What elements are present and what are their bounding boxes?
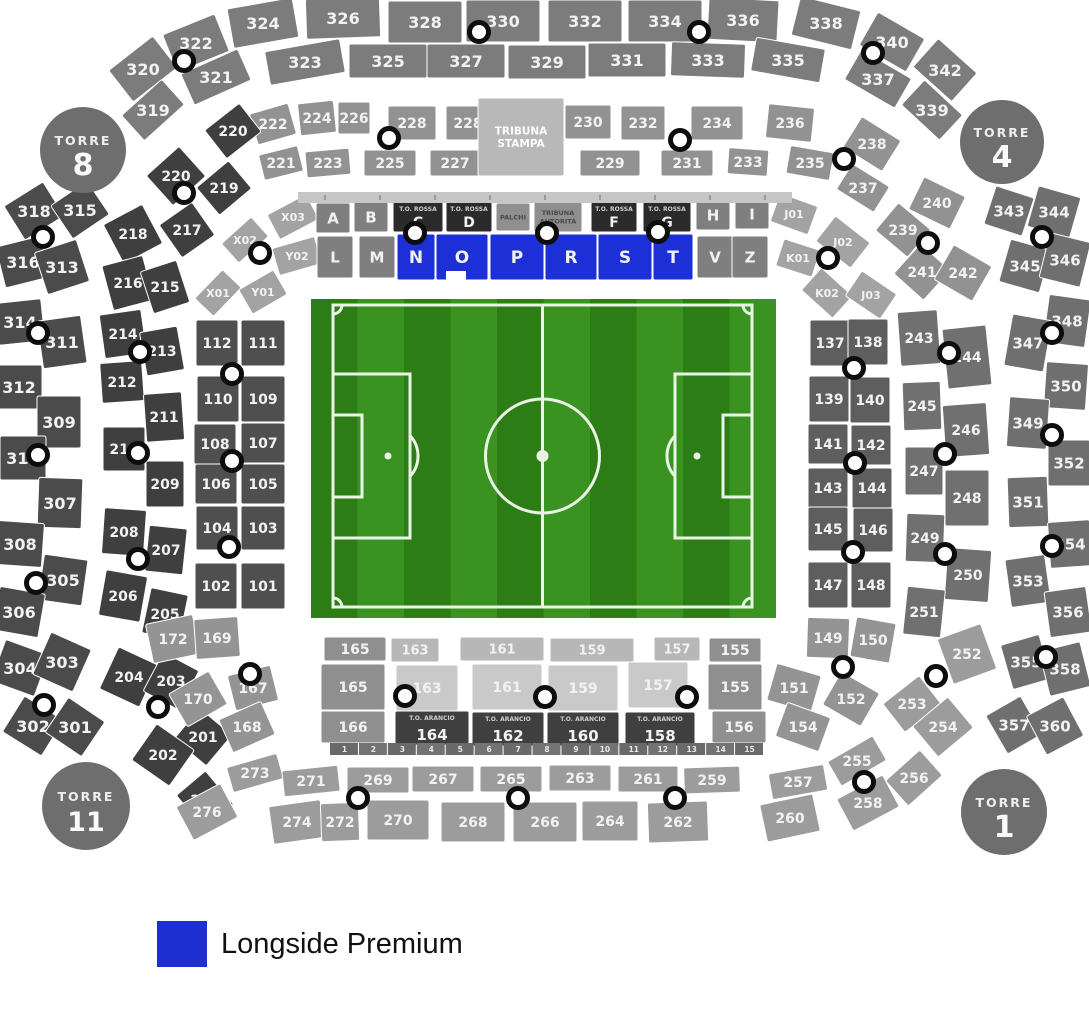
svg-text:218: 218 <box>118 227 147 243</box>
svg-text:333: 333 <box>691 51 724 70</box>
section-157[interactable]: 157 <box>654 637 700 661</box>
section-338[interactable]: 338 <box>791 0 861 50</box>
section-X01[interactable]: X01 <box>195 270 241 317</box>
svg-text:349: 349 <box>1012 414 1043 432</box>
entrance-marker <box>131 343 150 362</box>
svg-text:239: 239 <box>888 223 917 239</box>
section-351[interactable]: 351 <box>1007 476 1049 527</box>
section-220[interactable]: 220 <box>205 103 262 158</box>
svg-text:326: 326 <box>326 9 359 28</box>
section-223[interactable]: 223 <box>305 148 351 178</box>
section-335[interactable]: 335 <box>751 37 826 83</box>
svg-text:257: 257 <box>783 775 812 791</box>
svg-text:307: 307 <box>43 494 76 513</box>
section-231[interactable]: 231 <box>661 150 713 176</box>
section-235[interactable]: 235 <box>786 145 834 180</box>
svg-text:Z: Z <box>745 248 756 266</box>
svg-text:106: 106 <box>201 477 230 493</box>
section-360[interactable]: 360 <box>1026 697 1084 756</box>
tower-11: TORRE11 <box>42 762 130 850</box>
svg-text:L: L <box>330 248 340 266</box>
section-236[interactable]: 236 <box>765 104 814 143</box>
svg-text:V: V <box>709 248 721 266</box>
svg-text:8: 8 <box>73 148 94 183</box>
section-312[interactable]: 312 <box>0 365 42 409</box>
svg-text:168: 168 <box>232 720 261 736</box>
section-227[interactable]: 227 <box>430 150 480 176</box>
section-343[interactable]: 343 <box>984 186 1034 236</box>
row-indicator-strip-bottom: 123456789101112131415 <box>330 743 763 755</box>
svg-text:14: 14 <box>715 745 725 754</box>
svg-text:315: 315 <box>63 201 96 220</box>
section-158[interactable]: T.O. ARANCIO158 <box>625 712 695 746</box>
section-207[interactable]: 207 <box>145 525 188 575</box>
section-140[interactable]: 140 <box>850 377 890 423</box>
svg-text:325: 325 <box>371 52 404 71</box>
entrance-marker <box>536 688 555 707</box>
svg-text:243: 243 <box>904 331 933 347</box>
svg-text:320: 320 <box>126 60 159 79</box>
svg-text:5: 5 <box>458 745 463 754</box>
svg-text:12: 12 <box>658 745 668 754</box>
svg-text:259: 259 <box>697 773 726 789</box>
section-226[interactable]: 226 <box>338 102 370 134</box>
svg-text:236: 236 <box>775 116 804 132</box>
entrance-marker <box>470 23 489 42</box>
section-325[interactable]: 325 <box>349 44 427 78</box>
entrance-marker <box>27 574 46 593</box>
svg-text:216: 216 <box>113 276 142 292</box>
entrance-marker <box>678 688 697 707</box>
svg-text:248: 248 <box>952 491 981 507</box>
svg-text:T: T <box>667 248 679 268</box>
section-356[interactable]: 356 <box>1044 586 1089 637</box>
svg-text:169: 169 <box>202 631 231 647</box>
entrance-marker <box>844 543 863 562</box>
section-259[interactable]: 259 <box>684 766 741 794</box>
section-333[interactable]: 333 <box>670 42 745 79</box>
svg-text:T.O. ROSSA: T.O. ROSSA <box>399 206 437 213</box>
svg-text:K01: K01 <box>786 252 810 265</box>
svg-text:360: 360 <box>1039 717 1070 735</box>
section-212[interactable]: 212 <box>100 361 145 404</box>
svg-text:237: 237 <box>848 181 877 197</box>
svg-text:329: 329 <box>530 53 563 72</box>
svg-text:170: 170 <box>183 692 212 708</box>
section-273[interactable]: 273 <box>226 753 283 792</box>
svg-text:T.O. ARANCIO: T.O. ARANCIO <box>560 716 605 723</box>
svg-text:353: 353 <box>1012 572 1043 590</box>
stadium-seating-map-page: 3203223243263283303323343363383403423193… <box>0 0 1089 1032</box>
svg-text:1: 1 <box>342 745 347 754</box>
entrance-marker <box>29 324 48 343</box>
section-328[interactable]: 328 <box>388 1 462 43</box>
section-242[interactable]: 242 <box>934 245 992 302</box>
section-103[interactable]: 103 <box>241 506 285 550</box>
svg-text:13: 13 <box>686 745 696 754</box>
section-336[interactable]: 336 <box>707 0 779 43</box>
section-155[interactable]: 155 <box>709 638 761 662</box>
svg-text:PALCHI: PALCHI <box>500 213 526 221</box>
entrance-marker <box>1043 426 1062 445</box>
svg-text:229: 229 <box>595 156 624 172</box>
entrance-marker <box>649 223 668 242</box>
section-143[interactable]: 143 <box>808 468 848 508</box>
section-265[interactable]: 265 <box>480 766 542 792</box>
svg-text:207: 207 <box>151 543 180 559</box>
svg-text:164: 164 <box>416 726 447 744</box>
svg-text:304: 304 <box>3 659 36 678</box>
section-H[interactable]: H <box>696 200 730 230</box>
entrance-marker <box>855 773 874 792</box>
section-147[interactable]: 147 <box>808 562 848 608</box>
svg-text:339: 339 <box>915 101 948 120</box>
svg-text:T.O. ARANCIO: T.O. ARANCIO <box>485 716 530 723</box>
section-D[interactable]: T.O. ROSSAD <box>446 202 492 232</box>
section-148[interactable]: 148 <box>851 562 891 608</box>
section-M[interactable]: M <box>359 236 395 278</box>
section-243[interactable]: 243 <box>897 310 941 367</box>
svg-text:172: 172 <box>158 632 187 648</box>
svg-text:271: 271 <box>296 774 325 790</box>
svg-text:268: 268 <box>458 815 487 831</box>
section-327[interactable]: 327 <box>427 44 505 78</box>
section-166[interactable]: 166 <box>321 711 385 743</box>
section-F[interactable]: T.O. ROSSAF <box>591 202 637 232</box>
svg-text:154: 154 <box>788 720 817 736</box>
section-159[interactable]: 159 <box>550 638 634 662</box>
svg-text:247: 247 <box>909 464 938 480</box>
svg-text:T.O. ARANCIO: T.O. ARANCIO <box>637 716 682 723</box>
entrance-marker <box>919 234 938 253</box>
svg-text:I: I <box>749 205 755 223</box>
entrance-marker <box>1043 537 1062 556</box>
section-232[interactable]: 232 <box>621 106 665 140</box>
section-245[interactable]: 245 <box>902 381 942 430</box>
section-161[interactable]: 161 <box>472 664 542 710</box>
svg-text:152: 152 <box>836 692 865 708</box>
svg-text:1: 1 <box>994 810 1015 845</box>
svg-text:105: 105 <box>248 477 277 493</box>
section-112[interactable]: 112 <box>196 320 238 366</box>
svg-text:246: 246 <box>951 423 980 439</box>
section-150[interactable]: 150 <box>850 617 896 663</box>
entrance-marker <box>936 445 955 464</box>
entrance-marker <box>690 23 709 42</box>
svg-text:163: 163 <box>401 644 428 659</box>
section-Y01[interactable]: Y01 <box>239 270 288 314</box>
section-264[interactable]: 264 <box>582 801 638 841</box>
legend-swatch <box>157 921 207 967</box>
entrance-marker <box>509 789 528 808</box>
svg-text:156: 156 <box>724 720 753 736</box>
svg-text:T.O. ROSSA: T.O. ROSSA <box>595 206 633 213</box>
section-141[interactable]: 141 <box>808 424 848 464</box>
svg-text:226: 226 <box>339 111 368 127</box>
section-S[interactable]: S <box>598 234 652 280</box>
tower-4: TORRE4 <box>960 100 1044 184</box>
section-165[interactable]: 165 <box>321 664 385 710</box>
section-TRIBUNASTAMPA[interactable]: TRIBUNASTAMPA <box>478 98 564 176</box>
section-169[interactable]: 169 <box>194 617 241 660</box>
section-221[interactable]: 221 <box>258 146 303 181</box>
svg-text:224: 224 <box>302 111 331 127</box>
section-notch <box>446 271 466 282</box>
entrance-marker <box>846 454 865 473</box>
svg-text:145: 145 <box>813 522 842 538</box>
section-159[interactable]: 159 <box>548 665 618 711</box>
section-225[interactable]: 225 <box>364 150 416 176</box>
svg-text:R: R <box>564 248 577 268</box>
svg-text:272: 272 <box>325 815 354 831</box>
section-L[interactable]: L <box>317 236 353 278</box>
section-347[interactable]: 347 <box>1004 314 1052 372</box>
svg-text:305: 305 <box>46 571 79 590</box>
svg-text:262: 262 <box>663 815 692 831</box>
section-211[interactable]: 211 <box>143 392 184 443</box>
svg-text:214: 214 <box>108 327 137 343</box>
svg-text:107: 107 <box>248 436 277 452</box>
svg-text:219: 219 <box>209 181 238 197</box>
svg-text:161: 161 <box>492 680 521 696</box>
entrance-marker <box>835 150 854 169</box>
svg-text:101: 101 <box>248 579 277 595</box>
section-109[interactable]: 109 <box>241 376 285 422</box>
section-248[interactable]: 248 <box>945 470 989 526</box>
section-163[interactable]: 163 <box>391 638 439 662</box>
section-233[interactable]: 233 <box>727 148 769 177</box>
section-152[interactable]: 152 <box>822 672 879 727</box>
section-271[interactable]: 271 <box>282 765 340 797</box>
svg-text:252: 252 <box>952 647 981 663</box>
tower-8: TORRE8 <box>40 107 126 193</box>
svg-text:254: 254 <box>928 720 957 736</box>
section-206[interactable]: 206 <box>98 570 147 623</box>
svg-text:267: 267 <box>428 772 457 788</box>
svg-text:102: 102 <box>201 579 230 595</box>
svg-text:231: 231 <box>672 156 701 172</box>
section-222[interactable]: 222 <box>249 103 296 145</box>
entrance-marker <box>175 184 194 203</box>
tower-1: TORRE1 <box>961 769 1047 855</box>
svg-text:323: 323 <box>288 53 321 72</box>
section-Z[interactable]: Z <box>732 236 768 278</box>
section-323[interactable]: 323 <box>265 39 346 86</box>
svg-text:342: 342 <box>928 61 961 80</box>
section-154[interactable]: 154 <box>775 702 831 752</box>
svg-text:227: 227 <box>440 156 469 172</box>
section-101[interactable]: 101 <box>241 563 285 609</box>
svg-text:155: 155 <box>720 643 749 659</box>
section-A[interactable]: A <box>316 203 350 233</box>
section-326[interactable]: 326 <box>305 0 380 39</box>
section-PALCHI[interactable]: PALCHI <box>496 203 530 231</box>
svg-text:220: 220 <box>218 124 247 140</box>
section-263[interactable]: 263 <box>549 765 611 791</box>
section-162[interactable]: T.O. ARANCIO162 <box>472 712 544 746</box>
svg-text:8: 8 <box>544 745 549 754</box>
svg-text:TORRE: TORRE <box>976 795 1033 810</box>
section-324[interactable]: 324 <box>227 0 299 48</box>
entrance-marker <box>349 789 368 808</box>
section-274[interactable]: 274 <box>269 800 326 845</box>
svg-text:151: 151 <box>779 681 808 697</box>
svg-text:255: 255 <box>842 754 871 770</box>
section-102[interactable]: 102 <box>195 563 237 609</box>
svg-text:6: 6 <box>487 745 492 754</box>
svg-text:225: 225 <box>375 156 404 172</box>
section-I[interactable]: I <box>735 199 769 229</box>
svg-text:230: 230 <box>573 115 602 131</box>
svg-text:264: 264 <box>595 814 624 830</box>
svg-text:245: 245 <box>907 399 936 415</box>
svg-text:208: 208 <box>109 525 138 541</box>
svg-text:266: 266 <box>530 815 559 831</box>
svg-text:209: 209 <box>150 477 179 493</box>
svg-text:T.O. ROSSA: T.O. ROSSA <box>450 206 488 213</box>
section-V[interactable]: V <box>697 236 733 278</box>
svg-text:321: 321 <box>199 68 232 87</box>
section-230[interactable]: 230 <box>565 105 611 139</box>
section-224[interactable]: 224 <box>297 100 336 136</box>
section-332[interactable]: 332 <box>548 0 622 42</box>
section-137[interactable]: 137 <box>810 320 850 366</box>
entrance-marker <box>666 789 685 808</box>
svg-text:338: 338 <box>809 14 842 33</box>
svg-text:319: 319 <box>136 101 169 120</box>
svg-text:T.O. ARANCIO: T.O. ARANCIO <box>409 715 454 722</box>
section-149[interactable]: 149 <box>806 617 849 658</box>
legend-label: Longside Premium <box>221 928 463 961</box>
section-217[interactable]: 217 <box>159 202 215 258</box>
svg-text:F: F <box>609 215 619 231</box>
svg-text:352: 352 <box>1053 454 1084 472</box>
section-Y02[interactable]: Y02 <box>272 236 322 275</box>
svg-text:273: 273 <box>240 766 269 782</box>
svg-text:274: 274 <box>282 815 311 831</box>
svg-text:159: 159 <box>568 681 597 697</box>
svg-text:269: 269 <box>363 773 392 789</box>
section-350[interactable]: 350 <box>1043 362 1088 411</box>
svg-text:11: 11 <box>629 745 639 754</box>
svg-text:324: 324 <box>246 14 279 33</box>
svg-text:331: 331 <box>610 51 643 70</box>
section-251[interactable]: 251 <box>903 586 946 638</box>
section-105[interactable]: 105 <box>241 464 285 504</box>
svg-text:T.O. ROSSA: T.O. ROSSA <box>648 206 686 213</box>
section-156[interactable]: 156 <box>712 711 766 743</box>
section-215[interactable]: 215 <box>140 260 190 314</box>
svg-text:356: 356 <box>1052 603 1083 621</box>
entrance-marker <box>845 359 864 378</box>
section-352[interactable]: 352 <box>1048 440 1089 486</box>
section-111[interactable]: 111 <box>241 320 285 366</box>
svg-text:204: 204 <box>114 670 143 686</box>
section-165[interactable]: 165 <box>324 637 386 661</box>
section-219[interactable]: 219 <box>196 161 251 216</box>
section-303[interactable]: 303 <box>33 632 92 692</box>
svg-text:7: 7 <box>515 745 520 754</box>
svg-text:313: 313 <box>45 258 78 277</box>
section-209[interactable]: 209 <box>146 461 184 507</box>
svg-text:148: 148 <box>856 578 885 594</box>
entrance-marker <box>671 131 690 150</box>
svg-text:303: 303 <box>45 653 78 672</box>
section-331[interactable]: 331 <box>588 43 666 77</box>
entrance-marker <box>34 228 53 247</box>
svg-text:256: 256 <box>899 771 928 787</box>
section-353[interactable]: 353 <box>1005 554 1051 607</box>
section-234[interactable]: 234 <box>691 106 743 140</box>
section-J03[interactable]: J03 <box>845 271 897 319</box>
svg-text:B: B <box>365 208 376 226</box>
section-168[interactable]: 168 <box>219 701 276 753</box>
svg-text:165: 165 <box>338 680 367 696</box>
section-260[interactable]: 260 <box>760 794 821 842</box>
entrance-marker <box>380 129 399 148</box>
svg-text:9: 9 <box>573 745 578 754</box>
entrance-marker <box>834 658 853 677</box>
svg-text:308: 308 <box>3 535 36 554</box>
svg-text:139: 139 <box>814 392 843 408</box>
section-P[interactable]: P <box>490 234 544 280</box>
svg-text:4: 4 <box>992 140 1013 175</box>
section-218[interactable]: 218 <box>103 204 163 264</box>
section-139[interactable]: 139 <box>809 376 849 422</box>
section-329[interactable]: 329 <box>508 45 586 79</box>
entrance-marker <box>129 550 148 569</box>
section-308[interactable]: 308 <box>0 520 44 567</box>
entrance-marker <box>406 224 425 243</box>
svg-text:240: 240 <box>922 196 951 212</box>
svg-text:233: 233 <box>733 155 762 171</box>
svg-text:311: 311 <box>45 333 78 352</box>
svg-text:222: 222 <box>258 117 287 133</box>
svg-text:242: 242 <box>948 266 977 282</box>
svg-text:202: 202 <box>148 748 177 764</box>
svg-text:251: 251 <box>909 605 938 621</box>
svg-text:232: 232 <box>628 116 657 132</box>
svg-text:263: 263 <box>565 771 594 787</box>
section-107[interactable]: 107 <box>241 423 285 463</box>
entrance-marker <box>538 224 557 243</box>
section-257[interactable]: 257 <box>768 764 828 799</box>
svg-text:157: 157 <box>643 678 672 694</box>
entrance-marker <box>223 365 242 384</box>
section-155[interactable]: 155 <box>708 664 762 710</box>
svg-text:260: 260 <box>775 811 804 827</box>
svg-text:109: 109 <box>248 392 277 408</box>
section-268[interactable]: 268 <box>441 802 505 842</box>
section-161[interactable]: 161 <box>460 637 544 661</box>
section-204[interactable]: 204 <box>99 647 158 707</box>
section-270[interactable]: 270 <box>367 800 429 840</box>
svg-text:S: S <box>619 248 631 268</box>
svg-text:138: 138 <box>853 335 882 351</box>
section-164[interactable]: T.O. ARANCIO164 <box>395 711 469 745</box>
section-B[interactable]: B <box>354 202 388 232</box>
svg-text:O: O <box>455 248 469 268</box>
entrance-marker <box>149 698 168 717</box>
section-229[interactable]: 229 <box>580 150 640 176</box>
section-267[interactable]: 267 <box>412 766 474 792</box>
section-307[interactable]: 307 <box>37 477 83 529</box>
section-145[interactable]: 145 <box>808 507 848 551</box>
svg-text:336: 336 <box>726 11 759 30</box>
entrance-marker <box>241 665 260 684</box>
section-K01[interactable]: K01 <box>776 239 821 277</box>
section-160[interactable]: T.O. ARANCIO160 <box>547 712 619 746</box>
